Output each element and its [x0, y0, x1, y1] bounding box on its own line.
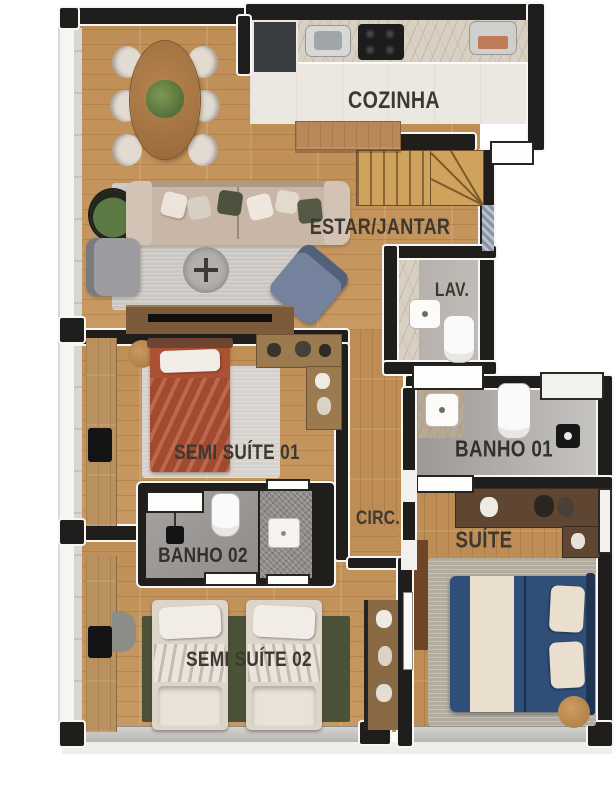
suite-bed — [450, 576, 592, 712]
fridge — [252, 20, 298, 74]
shower-drain — [556, 424, 580, 448]
sofa-armrest — [126, 181, 152, 245]
ss02-pouf — [112, 612, 136, 652]
clothes-icon — [480, 497, 498, 517]
clothes-icon — [558, 497, 574, 517]
room-label-circ: CIRC. — [356, 508, 400, 530]
wall-stairwell-top — [397, 134, 475, 150]
lav-toilet — [444, 316, 474, 362]
banho02-shower-tray — [268, 518, 300, 548]
corridor-door-gap — [401, 540, 417, 570]
ss01-closet-top — [256, 334, 342, 368]
banho02-shower-pipe — [174, 513, 176, 526]
outer-trim-bottom — [62, 742, 612, 754]
suite-pillow — [549, 641, 585, 689]
room-label-estar-jantar: ESTAR/JANTAR — [310, 214, 451, 240]
clothes-icon — [295, 341, 311, 357]
column — [60, 318, 84, 342]
ss02-wardrobe — [364, 600, 398, 730]
lav-sink — [410, 300, 440, 328]
sofa-pillow — [245, 192, 274, 221]
wall-top-kitchen — [246, 4, 544, 20]
suite-bed-seam — [524, 576, 526, 712]
clothes-icon — [571, 533, 585, 549]
entry-door — [490, 141, 534, 165]
wall-kitchen-right — [528, 4, 544, 150]
table-plant — [146, 80, 184, 118]
lav-banho01-doors — [412, 364, 484, 390]
room-label-banho-01: BANHO 01 — [455, 436, 553, 463]
suite-door-leaf — [403, 592, 413, 670]
cooktop — [358, 24, 404, 60]
suite-side-table — [558, 696, 590, 728]
corridor-door-gap — [401, 470, 417, 502]
clothes-icon — [376, 684, 392, 702]
column — [60, 520, 84, 544]
floor-plan: COZINHA ESTAR/JANTAR LAV. SEMI SUÍTE 01 … — [0, 0, 616, 800]
banho02-door-south — [266, 574, 310, 586]
suite-pillow — [549, 585, 585, 633]
ss01-pillow — [160, 349, 221, 373]
column — [60, 722, 84, 746]
shaft-hatch — [482, 205, 494, 251]
banho02-toilet — [212, 494, 239, 536]
kitchen-island-counter — [295, 121, 401, 150]
dining-chair — [188, 134, 218, 166]
room-label-lav: LAV. — [435, 280, 469, 302]
clothes-icon — [376, 610, 392, 628]
wall-lav-top — [384, 246, 496, 258]
ss02-pillow — [158, 604, 222, 639]
sofa-pillow — [274, 189, 299, 214]
staircase-winder — [430, 150, 484, 206]
clothes-icon — [534, 495, 554, 517]
clothes-icon — [267, 343, 281, 357]
left-window-track — [74, 28, 82, 722]
clothes-icon — [378, 646, 392, 666]
kitchen-appliance — [470, 22, 516, 54]
room-label-banho-02: BANHO 02 — [158, 544, 248, 568]
banho01-toilet — [498, 384, 530, 438]
clothes-icon — [317, 397, 331, 415]
suite-closet — [455, 488, 605, 528]
column — [60, 8, 78, 28]
bottom-sill-right — [412, 726, 590, 742]
burner — [365, 45, 375, 55]
ss02-pillow — [252, 604, 316, 639]
ss02-foot-blanket — [252, 686, 316, 726]
shower-head-dot — [564, 432, 572, 440]
ss02-tv — [88, 626, 112, 658]
burner — [365, 29, 375, 39]
sofa-pillow — [216, 189, 243, 216]
sofa-pillow — [186, 195, 211, 220]
wall-kitchen-divider — [238, 16, 250, 74]
banho01-window — [540, 372, 604, 400]
ss02-foot-blanket — [158, 686, 222, 726]
suite-headboard — [586, 573, 595, 715]
banho02-shower-drain — [166, 526, 184, 544]
sofa-pillow — [159, 190, 188, 219]
clothes-icon — [315, 373, 330, 389]
coffee-table-handle — [204, 258, 208, 282]
banho02-vanity — [146, 491, 204, 513]
coffee-table — [183, 247, 229, 293]
ss01-headboard — [147, 338, 233, 348]
banho02-door-north — [266, 479, 310, 491]
tv-screen — [148, 314, 272, 322]
burner — [385, 29, 395, 39]
suite-banho01-door — [416, 475, 474, 493]
ss01-closet-right — [306, 366, 342, 430]
suite-closet-ext — [562, 526, 600, 558]
room-label-semi-suite-02: SEMI SUÍTE 02 — [186, 648, 312, 672]
burner — [385, 45, 395, 55]
drain-dot — [281, 531, 286, 536]
wall-lav-left — [384, 246, 397, 374]
wall-top-left — [64, 8, 246, 24]
suite-side-window — [598, 488, 612, 554]
suite-bed-runner — [470, 576, 514, 712]
room-label-suite: SUÍTE — [455, 527, 512, 554]
appliance-inner — [478, 36, 508, 49]
staircase-treads — [356, 150, 432, 206]
tv-console — [126, 305, 294, 334]
wall-right-outer — [598, 376, 612, 746]
ss02-entry-door — [204, 572, 258, 586]
ss01-tv — [88, 428, 112, 462]
room-label-semi-suite-01: SEMI SUÍTE 01 — [174, 441, 300, 465]
dining-chair — [112, 134, 142, 166]
armchair-grey — [86, 238, 140, 296]
clothes-icon — [319, 344, 331, 357]
kitchen-sink-basin — [314, 31, 342, 50]
banho01-sink — [426, 394, 458, 426]
room-label-cozinha: COZINHA — [348, 87, 440, 115]
